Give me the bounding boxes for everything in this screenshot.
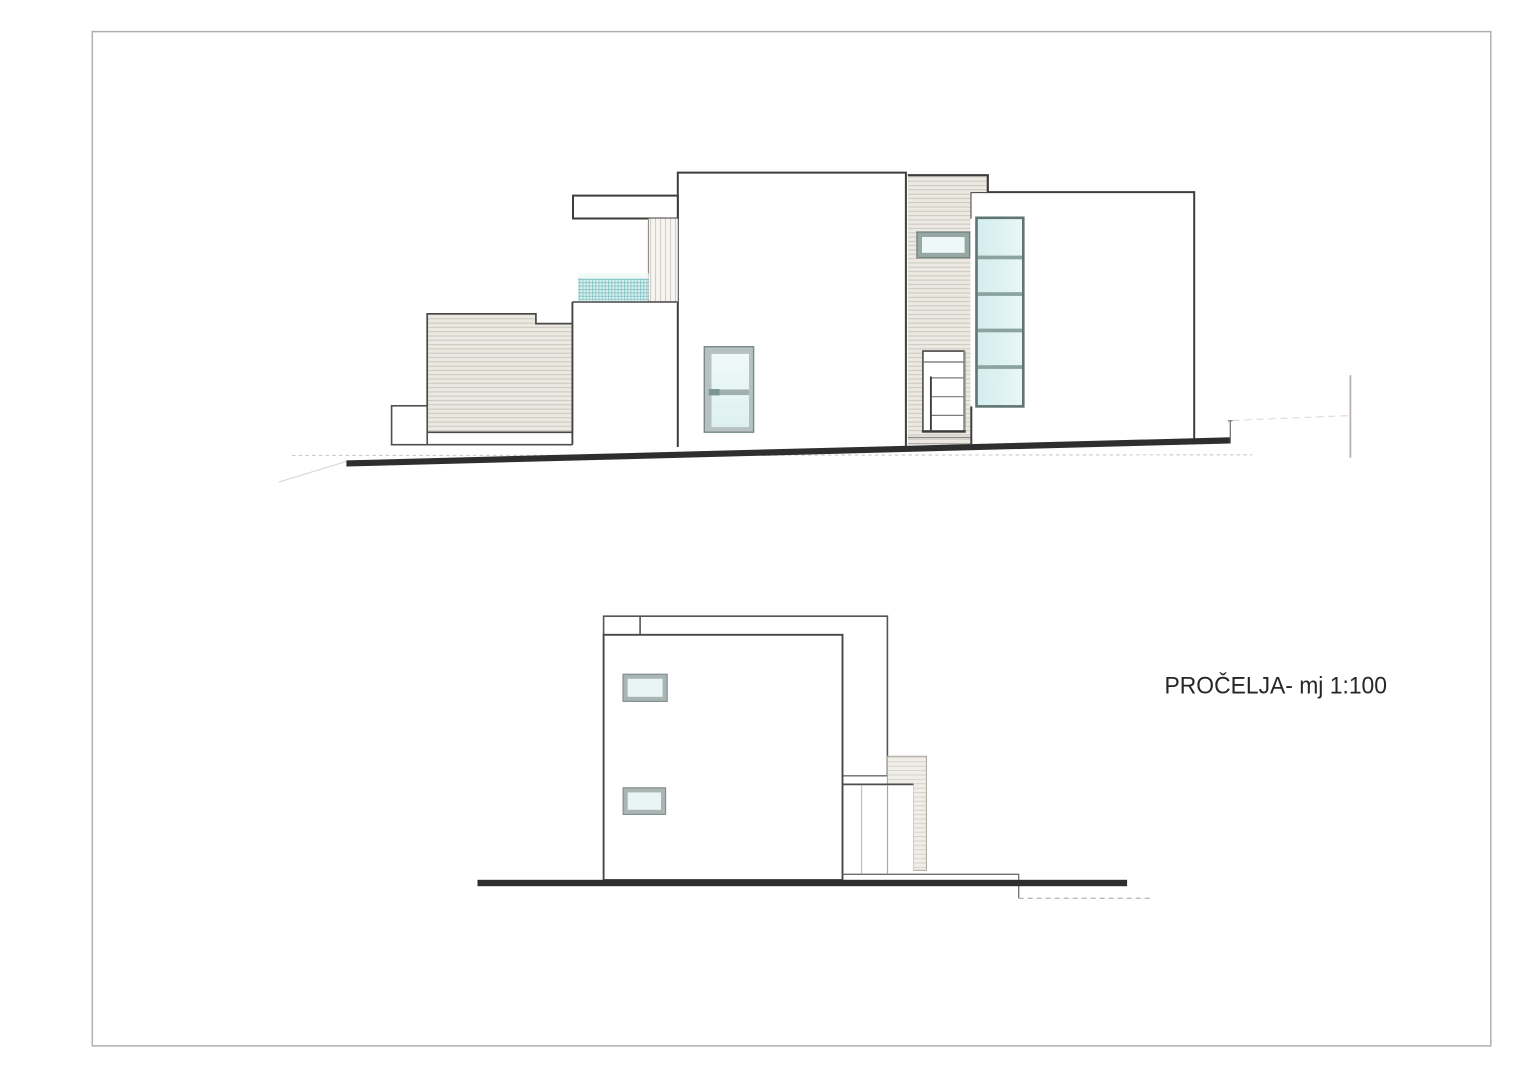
- svg-text:PROČELJA- mj 1:100: PROČELJA- mj 1:100: [1165, 672, 1388, 700]
